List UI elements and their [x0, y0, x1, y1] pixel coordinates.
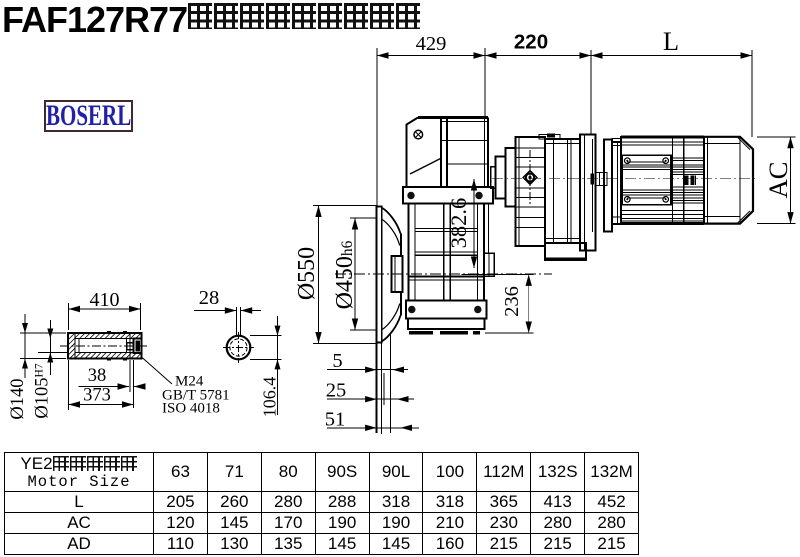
- svg-text:Ø105H7: Ø105H7: [33, 363, 53, 418]
- svg-text:AC: AC: [763, 162, 793, 199]
- svg-text:L: L: [663, 26, 679, 56]
- svg-text:25: 25: [326, 380, 347, 402]
- svg-text:38: 38: [88, 366, 107, 386]
- svg-text:28: 28: [199, 287, 220, 309]
- svg-text:429: 429: [416, 33, 447, 55]
- svg-text:410: 410: [90, 289, 120, 311]
- svg-text:382.6: 382.6: [446, 198, 471, 249]
- svg-text:Ø550: Ø550: [294, 247, 320, 300]
- svg-text:5: 5: [332, 350, 342, 372]
- svg-text:106.4: 106.4: [260, 377, 280, 418]
- svg-text:51: 51: [325, 409, 346, 431]
- svg-text:220: 220: [514, 31, 548, 54]
- svg-text:236: 236: [501, 286, 523, 317]
- svg-text:ISO 4018: ISO 4018: [162, 401, 220, 417]
- svg-text:Ø140: Ø140: [8, 378, 28, 419]
- svg-text:373: 373: [83, 386, 111, 406]
- svg-text:Ø450h6: Ø450h6: [332, 240, 358, 309]
